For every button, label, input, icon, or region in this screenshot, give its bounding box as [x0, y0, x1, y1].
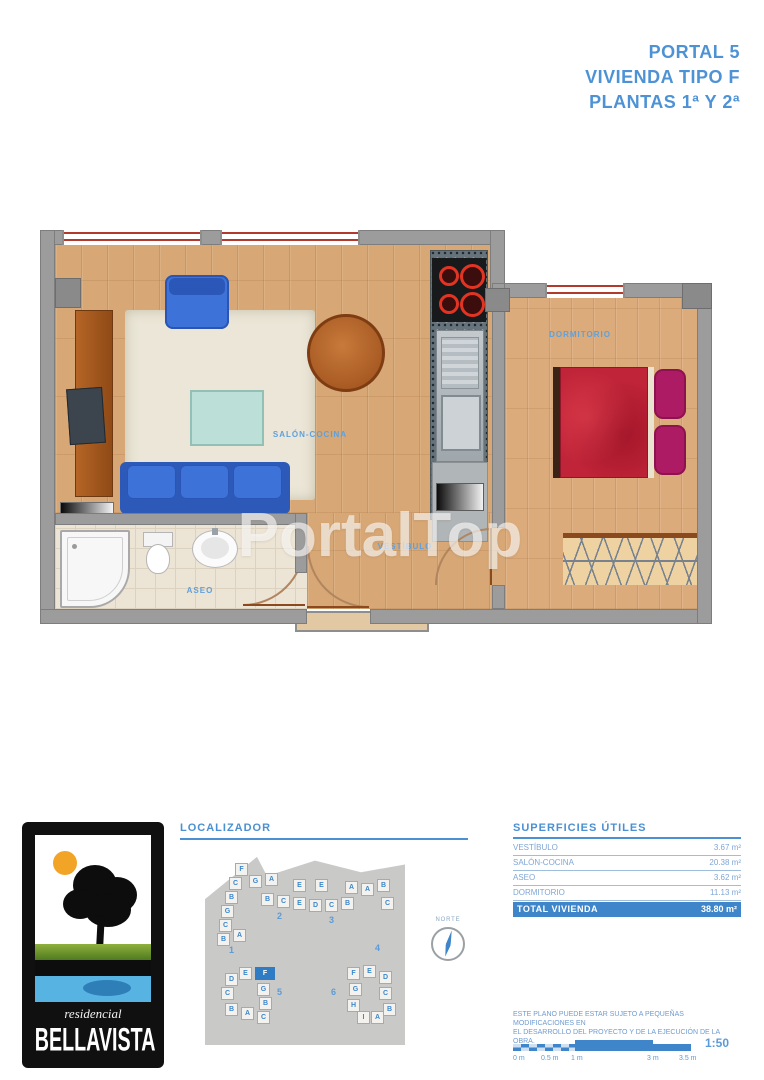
locator-unit: A: [345, 881, 358, 894]
scale-segment-right: [653, 1044, 691, 1051]
locator-unit: E: [293, 897, 306, 910]
locator-unit: B: [225, 1003, 238, 1016]
table-row: SALÓN-COCINA 20.38 m²: [513, 856, 741, 871]
sink-basin: [441, 395, 481, 451]
scale-bar: 1:50 0 m 0.5 m 1 m 3 m 3.5 m: [513, 1036, 743, 1066]
wall-left: [40, 230, 55, 624]
portal-number: 2: [277, 911, 282, 921]
locator-unit: B: [259, 997, 272, 1010]
total-label: TOTAL VIVIENDA: [517, 902, 598, 917]
scale-tick: 0 m: [513, 1055, 525, 1062]
scale-ratio: 1:50: [705, 1036, 729, 1050]
toilet-bowl: [146, 544, 170, 574]
pillar: [485, 288, 510, 312]
locator-unit: G: [221, 905, 234, 918]
row-value: 20.38 m²: [709, 856, 741, 870]
portal-number: 4: [375, 943, 380, 953]
locator-unit: B: [261, 893, 274, 906]
locator-unit: C: [219, 919, 232, 932]
room-label-dormitorio: DORMITORIO: [510, 330, 650, 339]
entry-door-leaf: [307, 606, 369, 608]
localizador-rule: [180, 838, 468, 840]
locator-unit-highlighted: F: [255, 967, 275, 980]
table-row: ASEO 3.62 m²: [513, 871, 741, 886]
window: [62, 230, 202, 245]
row-value: 11.13 m²: [710, 886, 741, 900]
logo-bellavista-text: BELLAVISTA: [35, 1022, 151, 1060]
brochure-page: PORTAL 5 VIVIENDA TIPO F PLANTAS 1ª Y 2ª: [0, 0, 764, 1080]
burner: [439, 266, 459, 286]
residencial-bellavista-logo: residencial BELLAVISTA: [22, 822, 164, 1068]
tree-reflection: [83, 980, 131, 996]
sofa-cushion: [233, 465, 282, 499]
compass-icon: [431, 927, 465, 961]
tree-trunk: [96, 915, 105, 947]
armchair: [165, 275, 229, 329]
locator-unit: G: [257, 983, 270, 996]
locator-unit: I: [357, 1011, 370, 1024]
kitchen-counter: [430, 250, 488, 520]
sofa-cushion: [127, 465, 176, 499]
locator-unit: F: [347, 967, 360, 980]
logo-residencial-text: residencial: [22, 1006, 164, 1022]
logo-sky: [35, 835, 151, 947]
window: [545, 283, 625, 298]
superficies-heading: SUPERFICIES ÚTILES: [513, 822, 741, 834]
scale-tick: 3.5 m: [679, 1055, 697, 1062]
wall-bottom-left: [40, 609, 307, 624]
disclaimer-line: ESTE PLANO PUEDE ESTAR SUJETO A PEQUEÑAS…: [513, 1010, 741, 1028]
total-value: 38.80 m²: [701, 902, 737, 917]
floor-plan: SALÓN-COCINA DORMITORIO ASEO VESTÍBULO P…: [40, 230, 712, 630]
row-label: ASEO: [513, 871, 535, 885]
sofa-cushion: [180, 465, 229, 499]
locator-unit: E: [239, 967, 252, 980]
watermark: PortalTop: [170, 500, 590, 572]
portal-number: 6: [331, 987, 336, 997]
title-plantas: PLANTAS 1ª Y 2ª: [585, 90, 740, 115]
row-label: VESTÍBULO: [513, 841, 558, 855]
wall-right: [697, 283, 712, 624]
superficies-table: SUPERFICIES ÚTILES VESTÍBULO 3.67 m² SAL…: [513, 822, 741, 917]
logo-grass-band: [35, 944, 151, 960]
table-row: DORMITORIO 11.13 m²: [513, 886, 741, 901]
portal-number: 1: [229, 945, 234, 955]
bed-mattress: [560, 367, 648, 478]
locator-unit: A: [361, 883, 374, 896]
locator-map: FCGABBCEEEDCBAABCGCBADEFCGBBACFEDGCHIAB1…: [205, 853, 405, 1045]
total-row: TOTAL VIVIENDA 38.80 m²: [513, 902, 741, 917]
sink-drainer: [441, 337, 479, 389]
scale-tick: 0.5 m: [541, 1055, 559, 1062]
compass-needle: [443, 930, 454, 957]
scale-segment-checker: [513, 1044, 575, 1051]
locator-unit: B: [383, 1003, 396, 1016]
logo-shadow-band: [35, 960, 151, 976]
tv: [66, 387, 106, 445]
room-label-aseo: ASEO: [160, 586, 240, 595]
portal-number: 3: [329, 915, 334, 925]
locator-unit: C: [325, 899, 338, 912]
bed-pillow: [654, 369, 686, 419]
burner: [460, 292, 485, 317]
row-label: DORMITORIO: [513, 886, 565, 900]
cooktop: [432, 258, 486, 322]
room-label-salon: SALÓN-COCINA: [240, 430, 380, 439]
locator-unit: D: [225, 973, 238, 986]
scale-tick: 3 m: [647, 1055, 659, 1062]
scale-tick: 1 m: [571, 1055, 583, 1062]
wall-bedroom-left: [492, 283, 505, 528]
locator-unit: A: [241, 1007, 254, 1020]
locator-unit: B: [341, 897, 354, 910]
burner: [460, 264, 485, 289]
bed-footboard: [553, 367, 560, 478]
wall-bedroom-left-stub: [492, 585, 505, 609]
locator-unit: E: [293, 879, 306, 892]
logo-water-band: [35, 976, 151, 1002]
dining-table: [307, 314, 385, 392]
bed: [553, 367, 690, 478]
locator-unit: A: [265, 873, 278, 886]
north-indicator: NORTE: [425, 916, 471, 961]
table-row: VESTÍBULO 3.67 m²: [513, 841, 741, 856]
norte-label: NORTE: [428, 917, 467, 923]
locator-unit: B: [225, 891, 238, 904]
armchair-back: [169, 278, 225, 295]
title-portal: PORTAL 5: [585, 40, 740, 65]
burner: [439, 294, 459, 314]
pillar: [682, 283, 712, 309]
wall-bottom-right: [370, 609, 712, 624]
title-vivienda: VIVIENDA TIPO F: [585, 65, 740, 90]
row-value: 3.62 m²: [714, 871, 741, 885]
portal-number: 5: [277, 987, 282, 997]
locator-unit: C: [221, 987, 234, 1000]
locator-unit: G: [249, 875, 262, 888]
window: [220, 230, 360, 245]
locator-unit: F: [235, 863, 248, 876]
locator-unit: C: [257, 1011, 270, 1024]
bathroom-door-leaf: [243, 604, 305, 606]
shower-drain: [72, 544, 77, 549]
row-value: 3.67 m²: [714, 841, 741, 855]
locator-unit: G: [349, 983, 362, 996]
scale-segment-mid: [575, 1040, 653, 1051]
sun-icon: [53, 851, 77, 875]
localizador-heading: LOCALIZADOR: [180, 822, 271, 834]
locator-unit: C: [379, 987, 392, 1000]
kitchen-sink: [436, 330, 484, 462]
superficies-rule: [513, 837, 741, 839]
row-label: SALÓN-COCINA: [513, 856, 574, 870]
locator-unit: C: [277, 895, 290, 908]
pillar: [55, 278, 81, 308]
locator-unit: D: [309, 899, 322, 912]
locator-unit: B: [377, 879, 390, 892]
locator-unit: E: [315, 879, 328, 892]
locator-unit: A: [233, 929, 246, 942]
tree-crown: [85, 893, 131, 927]
locator-unit: C: [381, 897, 394, 910]
bed-pillow: [654, 425, 686, 475]
title-block: PORTAL 5 VIVIENDA TIPO F PLANTAS 1ª Y 2ª: [585, 40, 740, 115]
locator-unit: C: [229, 877, 242, 890]
locator-unit: E: [363, 965, 376, 978]
locator-unit: D: [379, 971, 392, 984]
